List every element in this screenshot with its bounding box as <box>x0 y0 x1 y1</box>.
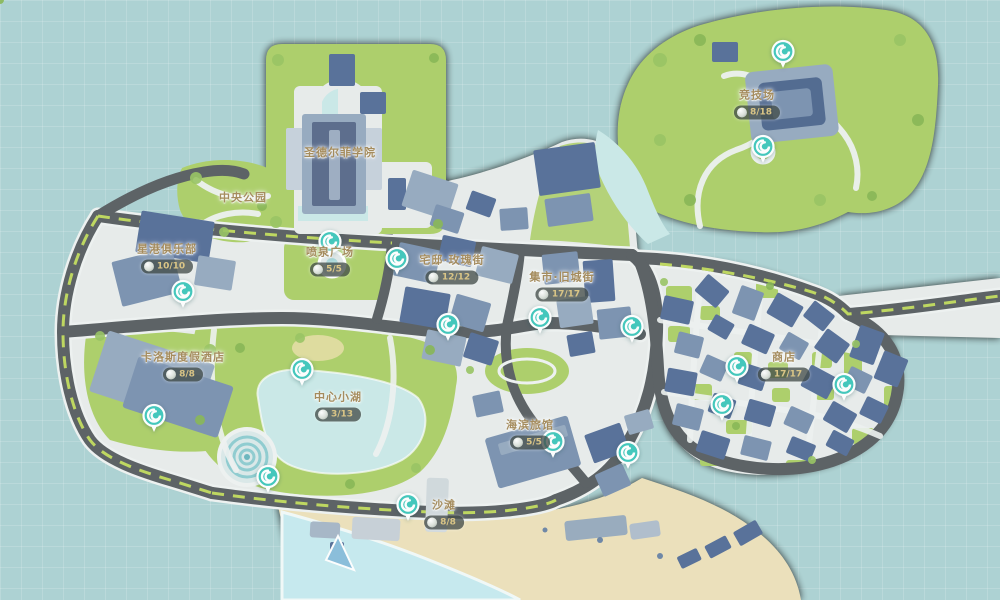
spiral-plaza <box>244 454 250 460</box>
teleport-marker[interactable] <box>141 403 167 434</box>
swirl-teleport-icon <box>141 403 167 434</box>
arena-building <box>744 63 839 144</box>
teleport-marker[interactable] <box>527 305 553 336</box>
swirl-teleport-icon <box>527 305 553 336</box>
teleport-marker[interactable] <box>770 39 796 70</box>
teleport-marker[interactable] <box>709 392 735 423</box>
teleport-marker[interactable] <box>615 440 641 471</box>
teleport-marker[interactable] <box>255 464 281 495</box>
swirl-teleport-icon <box>831 372 857 403</box>
swirl-teleport-icon <box>395 492 421 523</box>
swirl-teleport-icon <box>289 357 315 388</box>
teleport-marker[interactable] <box>170 279 196 310</box>
teleport-marker[interactable] <box>384 246 410 277</box>
swirl-teleport-icon <box>384 246 410 277</box>
school-gatehouse <box>329 54 355 86</box>
pier <box>425 478 449 533</box>
swirl-teleport-icon <box>615 440 641 471</box>
swirl-teleport-icon <box>724 354 750 385</box>
swirl-teleport-icon <box>750 134 776 165</box>
teleport-marker[interactable] <box>289 357 315 388</box>
teleport-marker[interactable] <box>435 312 461 343</box>
hill-hut <box>712 42 738 62</box>
teleport-marker[interactable] <box>831 372 857 403</box>
swirl-teleport-icon <box>770 39 796 70</box>
teleport-marker[interactable] <box>619 314 645 345</box>
swirl-teleport-icon <box>255 464 281 495</box>
swirl-teleport-icon <box>619 314 645 345</box>
teleport-marker[interactable] <box>317 229 343 260</box>
teleport-marker[interactable] <box>540 429 566 460</box>
swirl-teleport-icon <box>317 229 343 260</box>
swirl-teleport-icon <box>540 429 566 460</box>
map-terrain <box>0 0 1000 600</box>
teleport-marker[interactable] <box>395 492 421 523</box>
teleport-marker[interactable] <box>750 134 776 165</box>
swirl-teleport-icon <box>709 392 735 423</box>
teleport-marker[interactable] <box>724 354 750 385</box>
swirl-teleport-icon <box>170 279 196 310</box>
game-town-map[interactable]: 圣德尔菲学院 中央公园 星港俱乐部 10/10 喷泉广场 5/5 宅邸·玫瑰街 … <box>0 0 1000 600</box>
swirl-teleport-icon <box>435 312 461 343</box>
